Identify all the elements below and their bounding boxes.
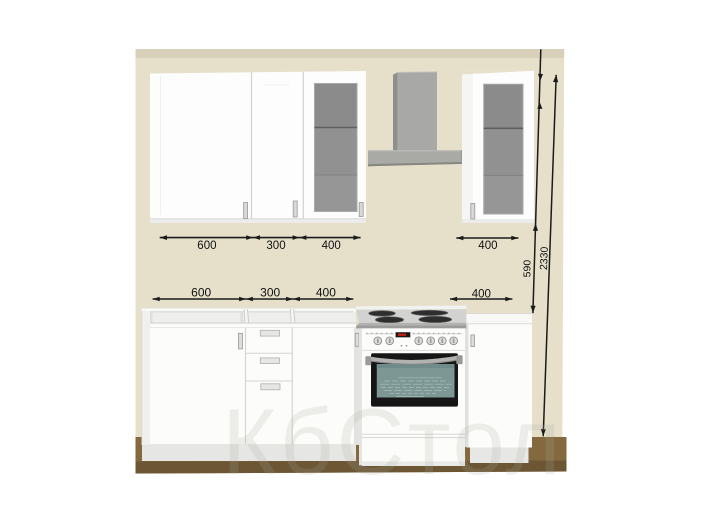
svg-text:КбСтол: КбСтол xyxy=(222,389,564,494)
svg-text:600: 600 xyxy=(197,240,216,252)
svg-text:590: 590 xyxy=(522,260,534,278)
svg-text:300: 300 xyxy=(266,240,285,252)
svg-text:400: 400 xyxy=(472,289,491,301)
svg-text:600: 600 xyxy=(191,285,211,299)
svg-text:400: 400 xyxy=(478,240,497,252)
svg-text:300: 300 xyxy=(260,285,280,299)
svg-text:400: 400 xyxy=(322,240,341,252)
svg-text:2330: 2330 xyxy=(538,246,551,270)
svg-text:400: 400 xyxy=(316,285,336,299)
